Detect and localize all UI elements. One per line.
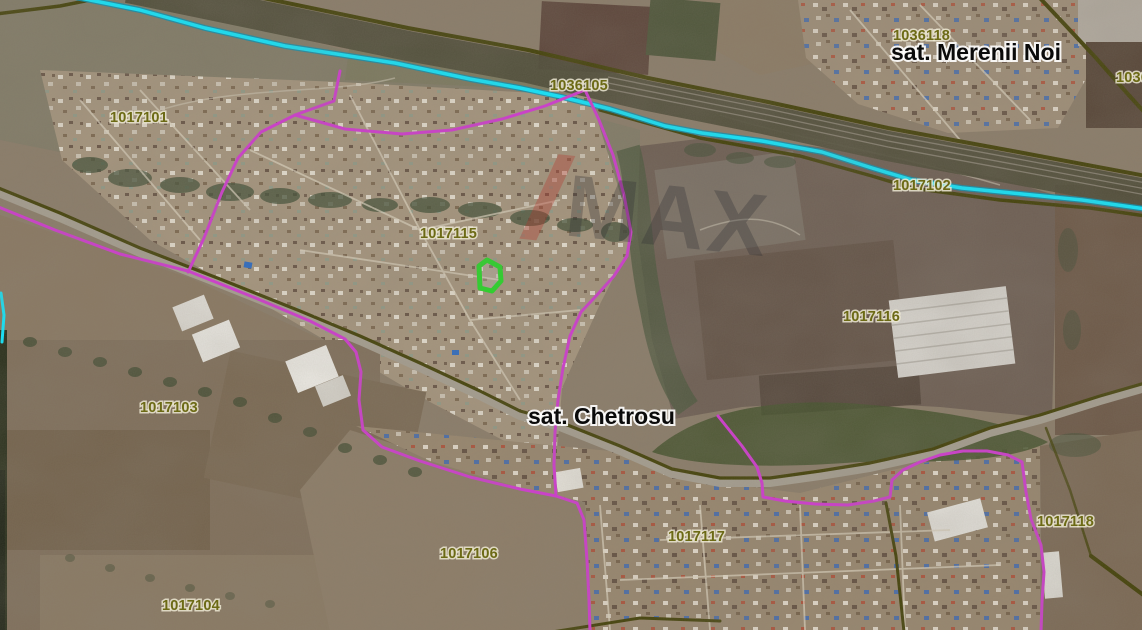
place-label-merenii-noi: sat. Merenii Noi: [891, 39, 1061, 65]
parcel-label-1017116: 1017116: [843, 309, 900, 325]
parcel-label-1017115: 1017115: [420, 226, 477, 242]
parcel-label-1036105: 1036105: [550, 78, 608, 94]
parcel-label-1017106: 1017106: [440, 546, 498, 562]
parcel-label-1017104: 1017104: [162, 598, 220, 614]
grain-overlay: [0, 0, 1142, 630]
parcel-label-1017101: 1017101: [110, 110, 168, 126]
parcel-label-1017117: 1017117: [668, 529, 725, 545]
place-label-chetrosu: sat. Chetrosu: [528, 403, 675, 429]
parcel-label-1017102: 1017102: [893, 178, 951, 194]
map-canvas[interactable]: MAX 1036118 1036105 1036 1017101 1017102…: [0, 0, 1142, 630]
parcel-label-1036-edge: 1036: [1116, 70, 1142, 86]
parcel-label-1017118: 1017118: [1037, 514, 1094, 530]
parcel-label-1017103: 1017103: [140, 400, 198, 416]
